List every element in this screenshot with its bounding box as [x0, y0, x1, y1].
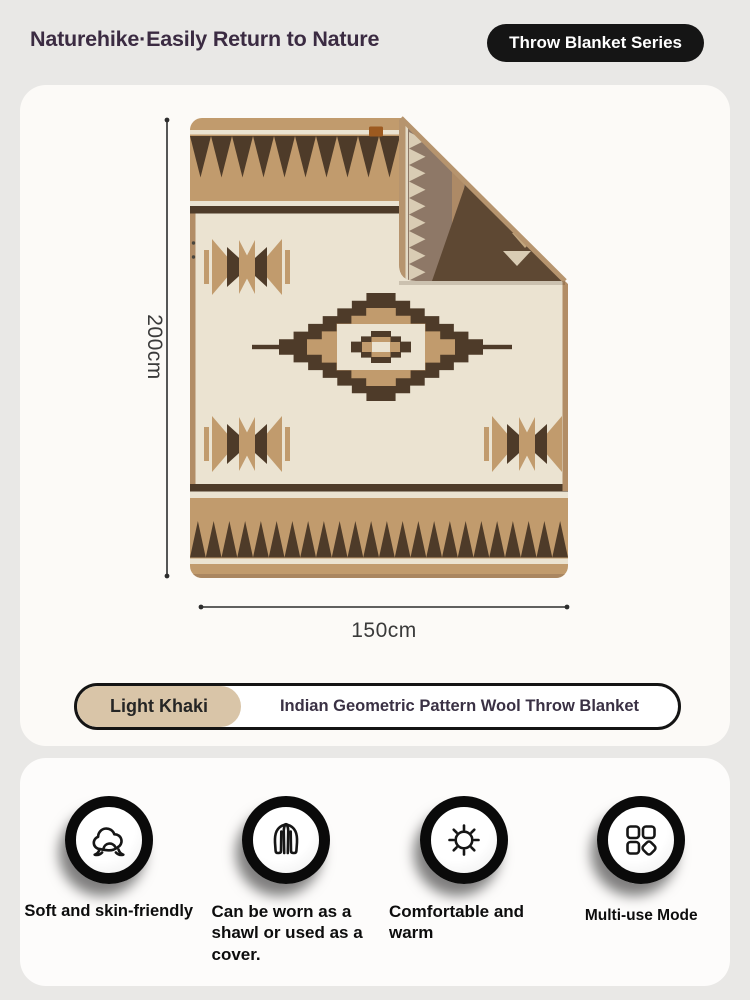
feature-item: Comfortable and warm: [375, 796, 553, 986]
brand-tag: [369, 127, 383, 137]
feature-label: Can be worn as a shawl or used as a cove…: [198, 901, 376, 965]
feature-label: Soft and skin-friendly: [20, 901, 198, 922]
feature-label: Comfortable and warm: [375, 901, 553, 944]
sun-warm-icon: [442, 818, 486, 862]
width-dimension-label: 150cm: [351, 619, 417, 642]
product-infographic-page: { "header": { "brand": "Naturehike·Easil…: [0, 0, 750, 1000]
feature-icon-ring: [242, 796, 330, 884]
feature-icon-ring: [597, 796, 685, 884]
product-card: 200cm 150cm Light Khaki Indian Geometric…: [20, 85, 730, 746]
blanket-photo: 200cm 150cm: [20, 85, 730, 665]
cotton-soft-icon: [87, 818, 131, 862]
shawl-icon: [264, 818, 308, 862]
series-badge: Throw Blanket Series: [487, 24, 704, 62]
variant-bar: Light Khaki Indian Geometric Pattern Woo…: [74, 683, 681, 730]
feature-icon-ring: [65, 796, 153, 884]
features-card: Soft and skin-friendly Can be worn as a …: [20, 758, 730, 986]
feature-item: Soft and skin-friendly: [20, 796, 198, 986]
variant-product-name: Indian Geometric Pattern Wool Throw Blan…: [241, 686, 678, 727]
multi-use-icon: [619, 818, 663, 862]
feature-icon-ring: [420, 796, 508, 884]
feature-label: Multi-use Mode: [553, 906, 731, 925]
feature-item: Can be worn as a shawl or used as a cove…: [198, 796, 376, 986]
feature-item: Multi-use Mode: [553, 796, 731, 986]
variant-color-chip: Light Khaki: [77, 686, 241, 727]
brand-title: Naturehike·Easily Return to Nature: [30, 27, 379, 52]
height-dimension-label: 200cm: [143, 314, 166, 380]
